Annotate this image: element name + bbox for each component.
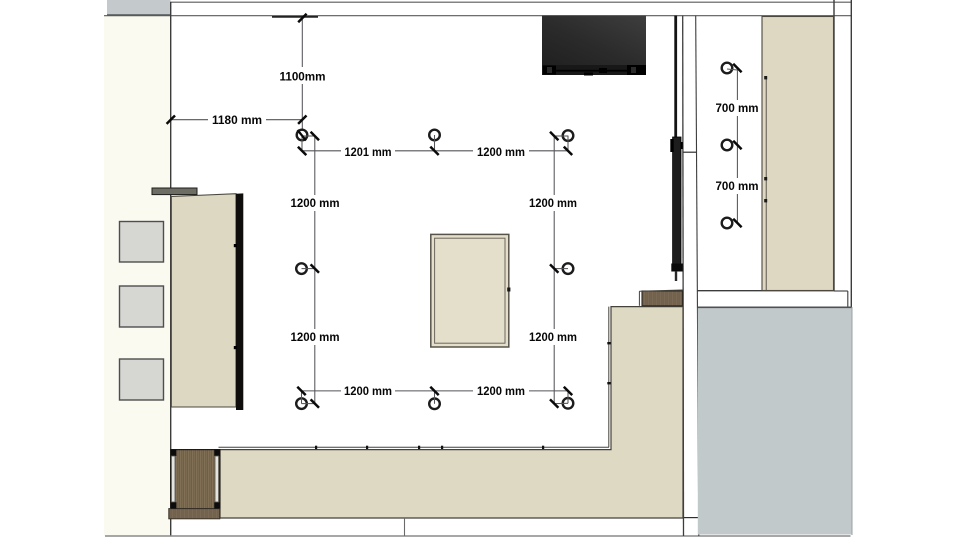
svg-text:1200 mm: 1200 mm bbox=[291, 196, 340, 210]
svg-text:1200 mm: 1200 mm bbox=[529, 196, 577, 210]
svg-text:700 mm: 700 mm bbox=[716, 101, 759, 115]
svg-text:1100mm: 1100mm bbox=[280, 70, 326, 84]
svg-text:1200 mm: 1200 mm bbox=[529, 330, 577, 344]
svg-text:1200 mm: 1200 mm bbox=[344, 384, 392, 398]
svg-text:700 mm: 700 mm bbox=[716, 179, 759, 193]
svg-text:1201 mm: 1201 mm bbox=[345, 145, 392, 159]
svg-text:1180 mm: 1180 mm bbox=[212, 113, 262, 127]
svg-text:1200 mm: 1200 mm bbox=[477, 145, 525, 159]
svg-text:1200 mm: 1200 mm bbox=[291, 330, 340, 344]
svg-text:1200 mm: 1200 mm bbox=[477, 384, 525, 398]
